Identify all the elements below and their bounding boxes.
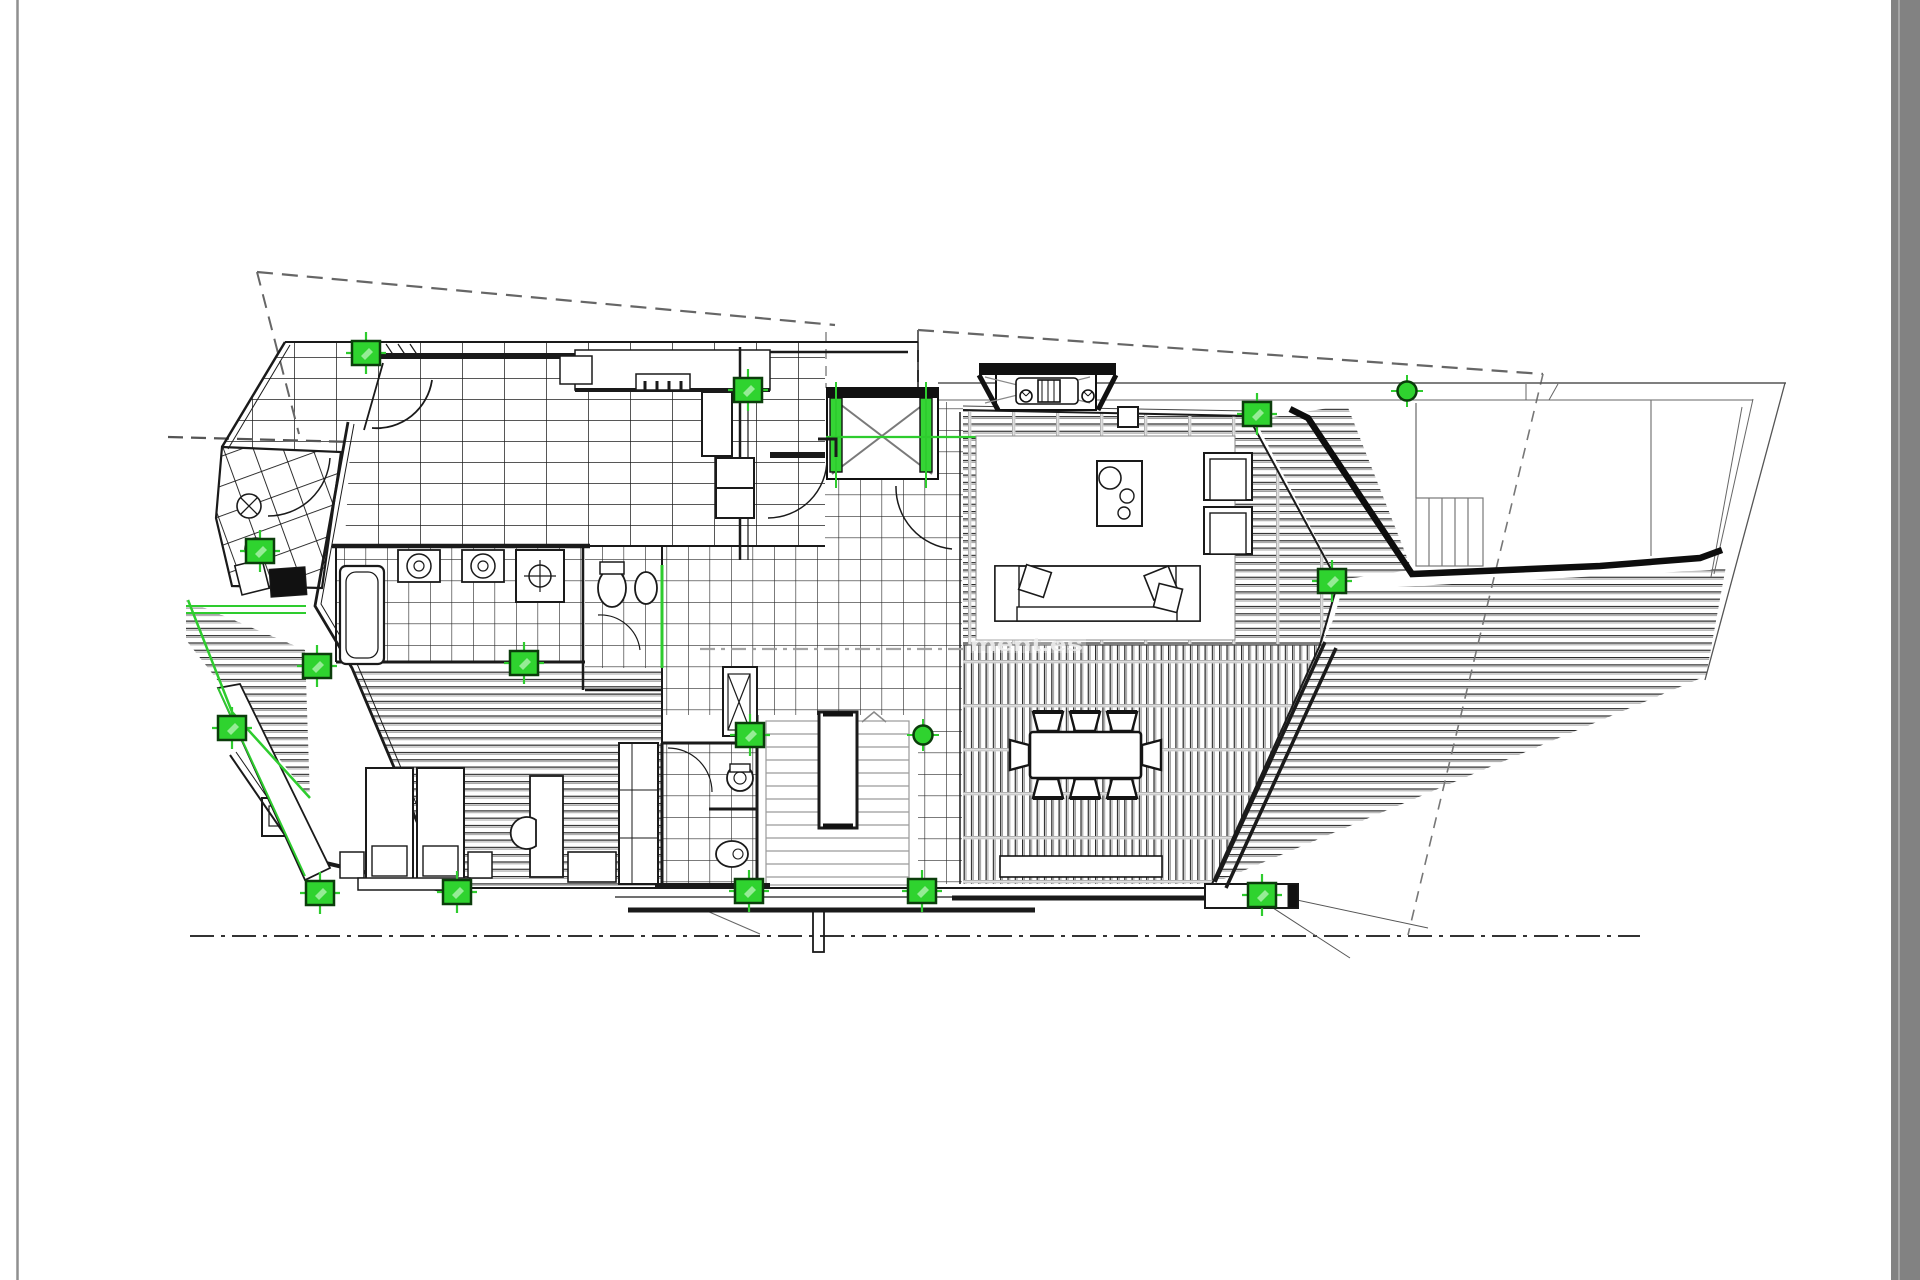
svg-text:ment.es: ment.es <box>970 635 1083 656</box>
